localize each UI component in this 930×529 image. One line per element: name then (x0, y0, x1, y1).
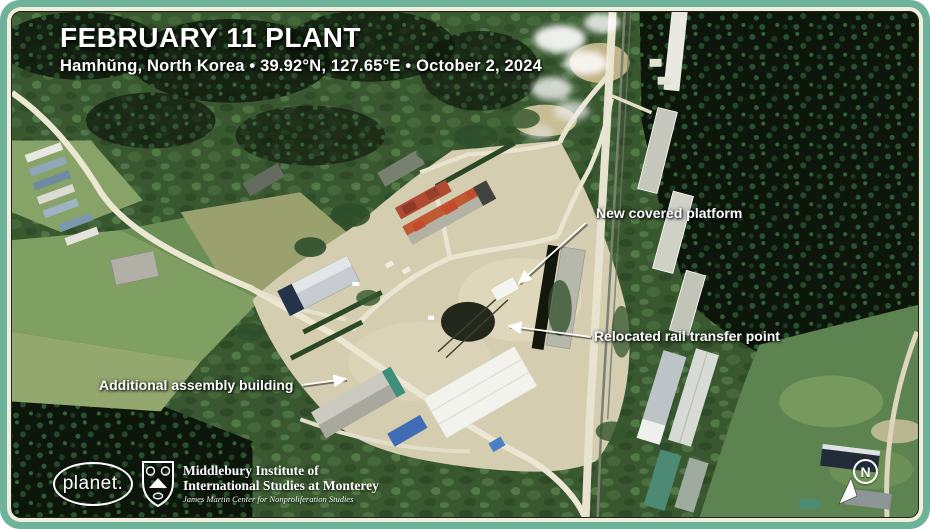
satellite-photo (11, 11, 919, 518)
annotation-relocated-rail-transfer-point: Relocated rail transfer point (594, 328, 780, 344)
middlebury-shield-icon (141, 460, 175, 508)
institute-line-2: International Studies at Monterey (183, 479, 379, 493)
title-block: FEBRUARY 11 PLANT Hamhŭng, North Korea •… (60, 22, 542, 76)
institute-text: Middlebury Institute of International St… (183, 464, 379, 503)
credits-block: planet. Middlebury Institute of Internat… (53, 460, 379, 508)
satellite-terrain (12, 12, 918, 517)
planet-logo: planet. (53, 462, 133, 506)
north-indicator: N (836, 456, 896, 508)
institute-line-1: Middlebury Institute of (183, 464, 379, 478)
planet-logo-text: planet. (63, 473, 124, 495)
figure-satellite-analysis: FEBRUARY 11 PLANT Hamhŭng, North Korea •… (0, 0, 930, 529)
location-date-subtitle: Hamhŭng, North Korea • 39.92°N, 127.65°E… (60, 57, 542, 76)
institute-line-3: James Martin Center for Nonproliferation… (183, 495, 379, 504)
annotation-new-covered-platform: New covered platform (596, 205, 742, 221)
annotation-additional-assembly-building: Additional assembly building (99, 377, 293, 393)
north-label: N (853, 459, 878, 484)
page-title: FEBRUARY 11 PLANT (60, 22, 542, 54)
